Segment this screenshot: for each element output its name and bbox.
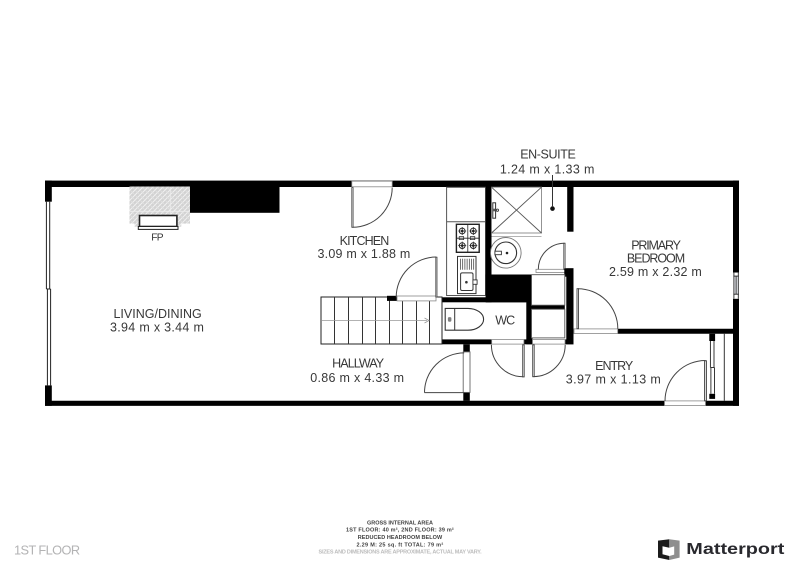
svg-text:GROSS INTERNAL AREA: GROSS INTERNAL AREA — [367, 520, 433, 526]
svg-text:2.29 M: 25 sq. ft TOTAL: 79 m²: 2.29 M: 25 sq. ft TOTAL: 79 m² — [356, 541, 443, 548]
svg-text:WC: WC — [495, 314, 515, 328]
svg-text:3.09 m x 1.88 m: 3.09 m x 1.88 m — [317, 247, 410, 261]
svg-text:HALLWAY: HALLWAY — [332, 357, 385, 371]
svg-text:ENTRY: ENTRY — [595, 359, 634, 373]
svg-text:Matterport: Matterport — [686, 540, 784, 557]
svg-text:2.59 m x 2.32 m: 2.59 m x 2.32 m — [609, 265, 702, 279]
svg-text:1ST FLOOR: 40 m², 2ND FLOOR: 3: 1ST FLOOR: 40 m², 2ND FLOOR: 39 m² — [346, 527, 454, 534]
svg-text:0.86 m x 4.33 m: 0.86 m x 4.33 m — [310, 371, 404, 385]
svg-text:PRIMARY: PRIMARY — [631, 238, 681, 252]
svg-text:3.97 m x 1.13 m: 3.97 m x 1.13 m — [566, 373, 661, 387]
svg-text:LIVING/DINING: LIVING/DINING — [113, 307, 201, 321]
svg-text:EN-SUITE: EN-SUITE — [520, 148, 575, 162]
svg-text:1ST FLOOR: 1ST FLOOR — [14, 543, 80, 558]
svg-text:REDUCED HEADROOM BELOW: REDUCED HEADROOM BELOW — [358, 535, 443, 541]
svg-text:SIZES AND DIMENSIONS ARE APPRO: SIZES AND DIMENSIONS ARE APPROXIMATE, AC… — [319, 550, 483, 556]
svg-text:3.94 m x 3.44 m: 3.94 m x 3.44 m — [110, 321, 204, 335]
svg-text:KITCHEN: KITCHEN — [340, 234, 390, 248]
svg-text:1.24 m x 1.33 m: 1.24 m x 1.33 m — [500, 162, 595, 176]
svg-text:FP: FP — [151, 232, 163, 243]
svg-text:BEDROOM: BEDROOM — [627, 252, 685, 266]
